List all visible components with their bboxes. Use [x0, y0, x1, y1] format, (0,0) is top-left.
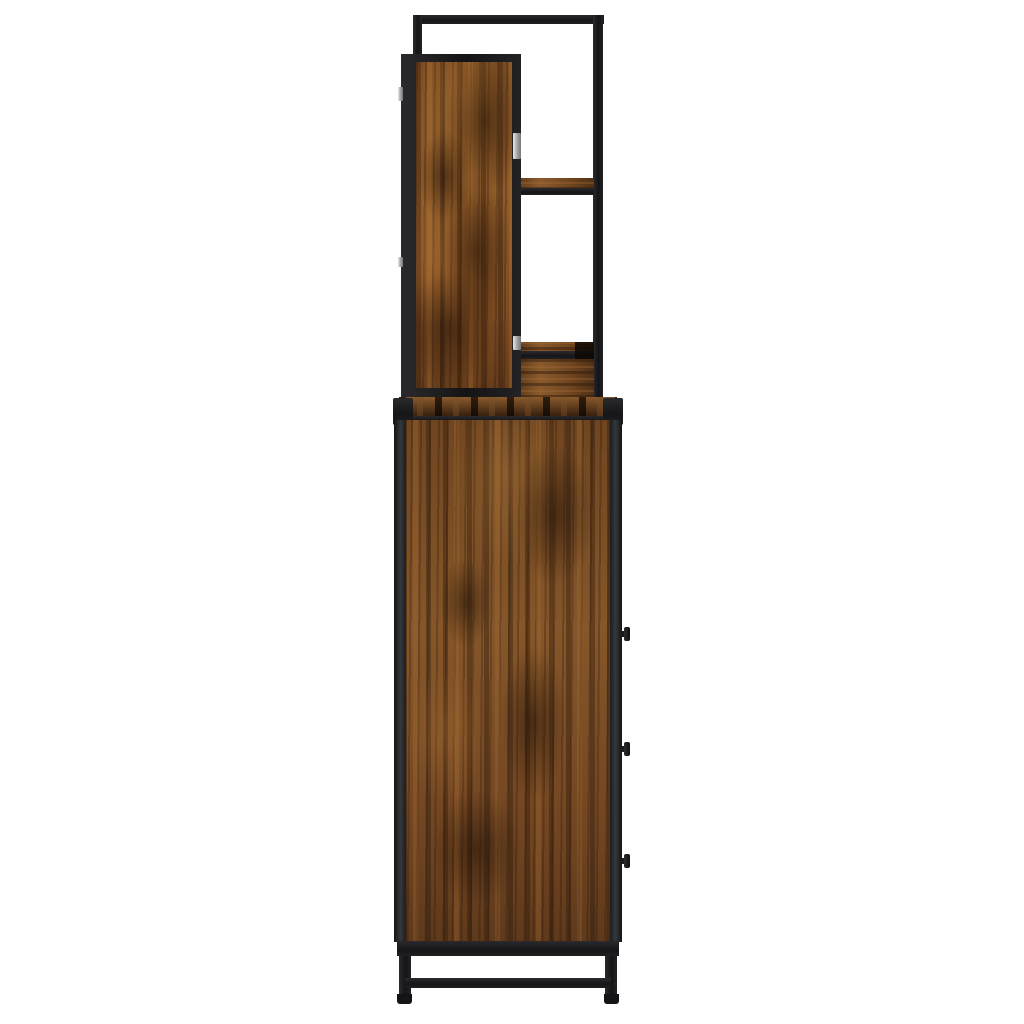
product-photo-cabinet-side-view — [0, 0, 1024, 1024]
top-frame-right-bar — [593, 15, 603, 400]
hinge-right-top-icon — [513, 133, 521, 159]
knob-cap — [624, 627, 630, 641]
foot-right — [604, 994, 619, 1004]
hinge-left-top-icon — [398, 87, 403, 101]
hinge-left-bottom-icon — [398, 257, 403, 267]
cabinet-rail-left — [394, 420, 406, 942]
mirror-panel-wood — [416, 62, 512, 388]
foot-left — [397, 994, 412, 1004]
cabinet-body-wood — [402, 420, 614, 942]
hinge-right-bottom-icon — [513, 336, 521, 350]
drawer-knob-3 — [620, 854, 630, 868]
knob-cap — [624, 742, 630, 756]
drawer-knob-1 — [620, 627, 630, 641]
lower-compartment-shadow — [575, 342, 594, 359]
drawer-knob-2 — [620, 742, 630, 756]
cabinet-top-wood — [399, 397, 617, 418]
top-frame-top-bar — [413, 15, 604, 24]
base-bottom-band — [397, 941, 619, 956]
knob-cap — [624, 854, 630, 868]
upper-shelf-trim — [513, 188, 594, 195]
base-stretcher-bar — [405, 978, 611, 988]
